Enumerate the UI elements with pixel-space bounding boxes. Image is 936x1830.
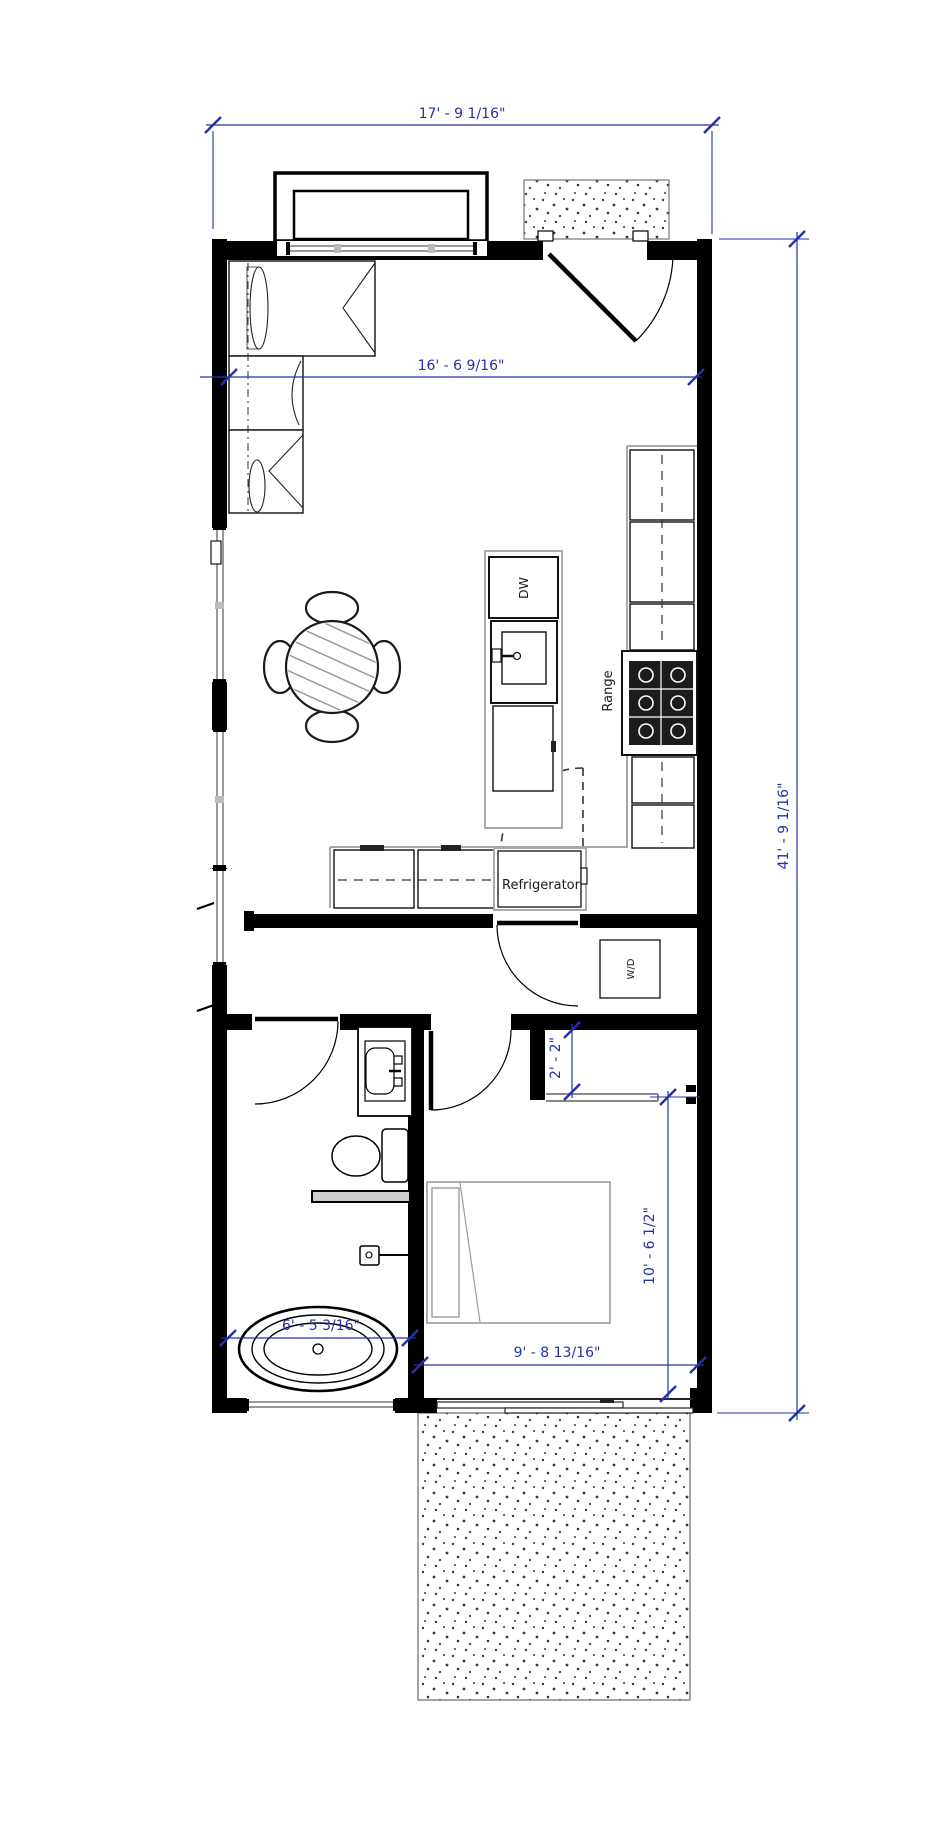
dim-bedroom-width-text: 9' - 8 13/16" [514, 1345, 601, 1361]
dim-overall-depth-text: 41' - 9 1/16" [776, 783, 792, 870]
island-faucet [514, 653, 521, 660]
patio [418, 1413, 690, 1700]
bedroom-door [431, 1030, 511, 1110]
entry-closet [229, 261, 375, 513]
entry-stoop [524, 180, 669, 239]
range-label: Range [601, 670, 616, 711]
kitchen-bottom-run [330, 845, 627, 910]
left-wall-window-3 [212, 867, 227, 966]
dining-table [264, 592, 400, 747]
dishwasher-label: DW [516, 577, 531, 599]
washer-dryer-label: W/D [626, 958, 637, 979]
island-base-cabinet [493, 706, 553, 791]
towel-bar [312, 1191, 410, 1202]
dimension-closet-depth: 2' - 2" [548, 1022, 580, 1100]
bay-window [275, 173, 487, 241]
dimension-bedroom-depth: 10' - 6 1/2" [642, 1089, 700, 1402]
sliding-door [437, 1399, 693, 1413]
range [622, 651, 697, 755]
bathroom-door [255, 1019, 338, 1104]
dim-bathroom-width-text: 6' - 5 3/16" [282, 1318, 360, 1334]
closet-shelf [546, 1094, 658, 1101]
floor-plan-page: 17' - 9 1/16" 41' - 9 1/16" 16' - 6 9/16… [0, 0, 936, 1830]
top-wall-window [277, 241, 487, 256]
dim-living-width-text: 16' - 6 9/16" [418, 358, 505, 374]
wall-control [360, 1246, 409, 1265]
refrigerator-label: Refrigerator [502, 878, 581, 893]
kitchen-right-run [622, 446, 697, 848]
left-wall-window-2 [212, 728, 227, 869]
dim-bedroom-depth-text: 10' - 6 1/2" [642, 1207, 658, 1285]
vanity-sink [358, 1027, 412, 1116]
hall-door [497, 923, 578, 1006]
floor-plan-svg: 17' - 9 1/16" 41' - 9 1/16" 16' - 6 9/16… [0, 0, 936, 1830]
dimension-bedroom-width: 9' - 8 13/16" [412, 1345, 706, 1373]
dim-overall-width-text: 17' - 9 1/16" [419, 106, 506, 122]
dimension-overall-depth: 41' - 9 1/16" [717, 231, 809, 1421]
toilet [332, 1129, 408, 1182]
bed [427, 1182, 610, 1323]
bathroom-window [245, 1398, 397, 1413]
island-sink [502, 632, 546, 684]
dim-closet-depth-text: 2' - 2" [548, 1037, 564, 1079]
